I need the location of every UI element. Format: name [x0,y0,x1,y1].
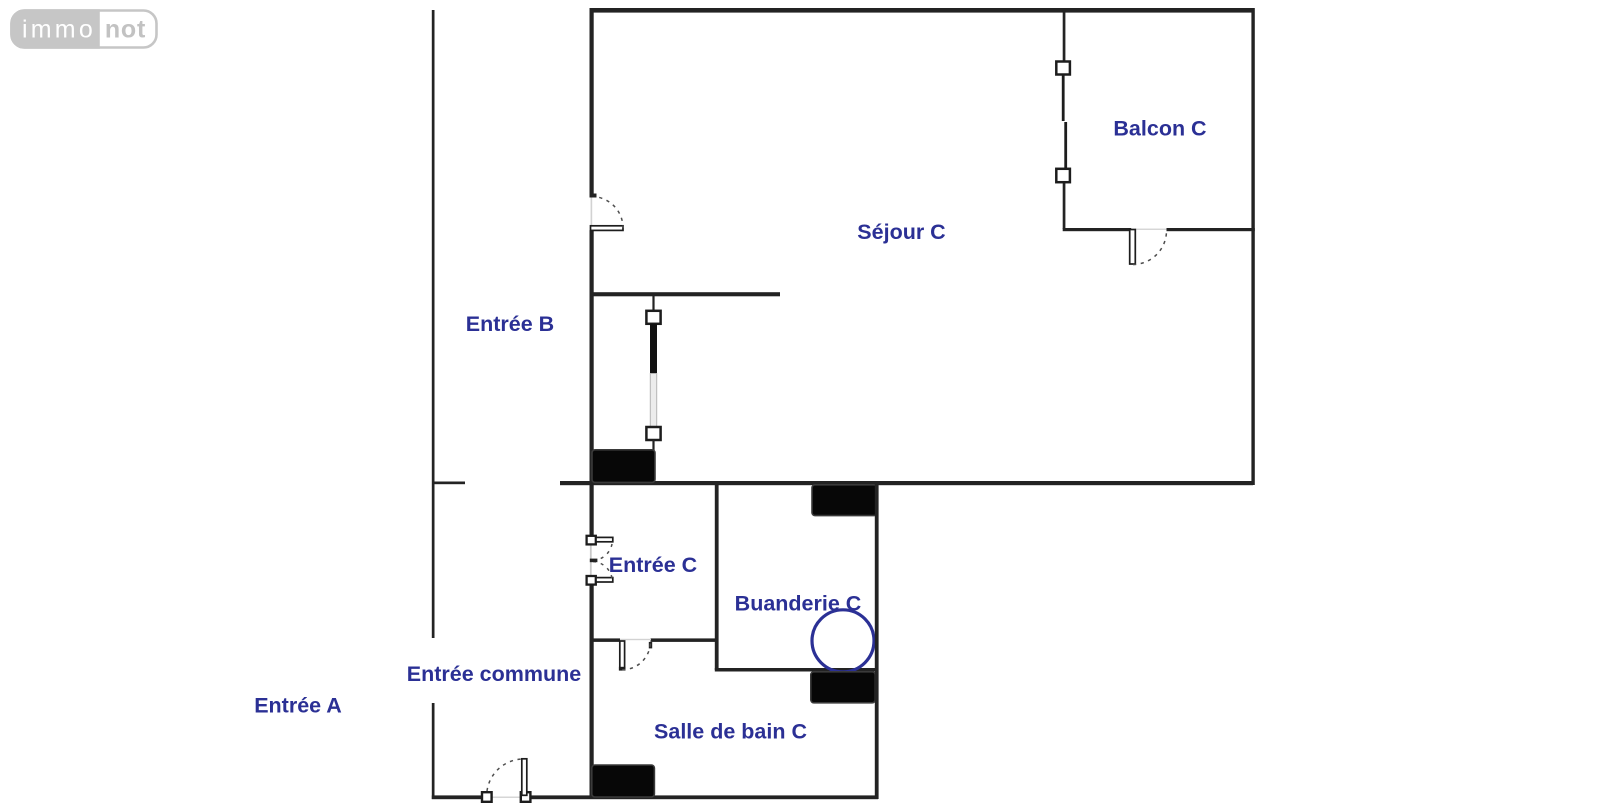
svg-text:Buanderie C: Buanderie C [735,592,862,616]
svg-text:Séjour C: Séjour C [857,220,945,244]
svg-text:Entrée A: Entrée A [254,694,342,718]
svg-text:Entrée B: Entrée B [466,312,554,336]
svg-text:Balcon C: Balcon C [1113,117,1206,141]
svg-text:Salle de bain C: Salle de bain C [654,720,807,744]
svg-text:Entrée commune: Entrée commune [407,662,581,686]
svg-text:not: not [105,16,146,44]
svg-text:Entrée C: Entrée C [609,553,697,577]
svg-text:immo: immo [22,16,96,44]
